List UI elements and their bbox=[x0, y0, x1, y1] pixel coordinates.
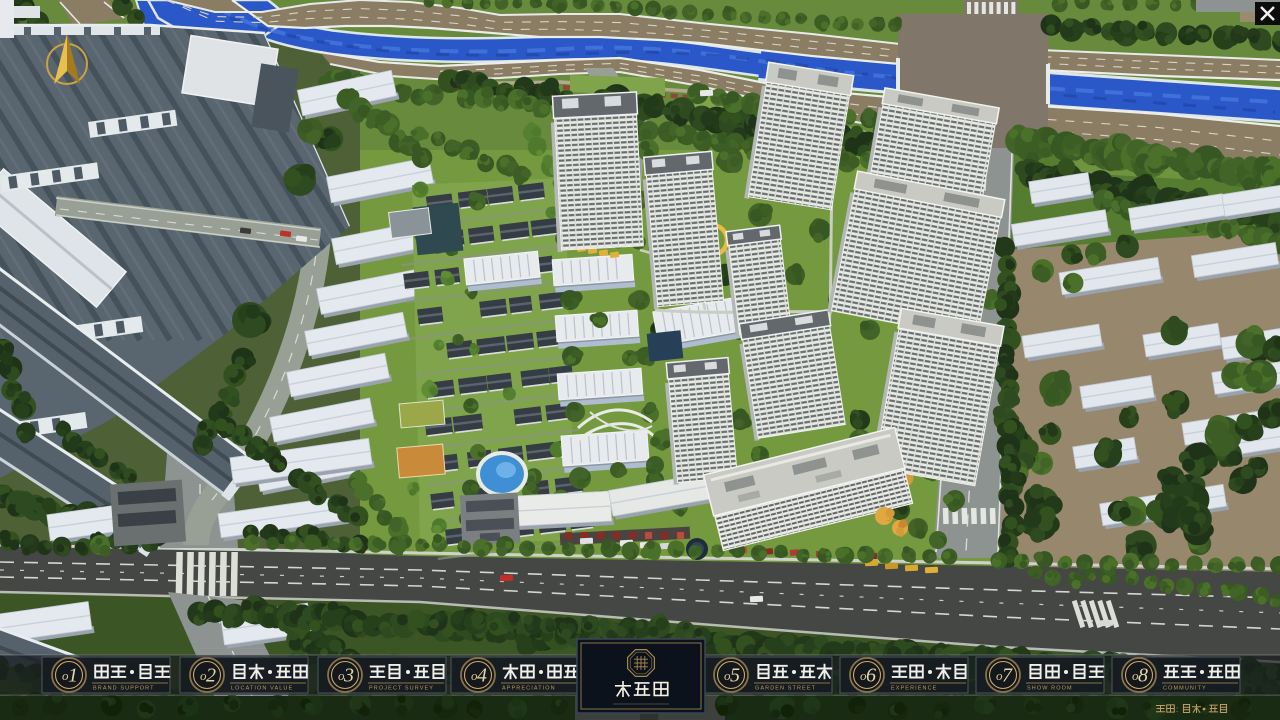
svg-text:7: 7 bbox=[1002, 665, 1013, 687]
svg-text:PROJECT SURVEY: PROJECT SURVEY bbox=[369, 686, 434, 692]
svg-text:4: 4 bbox=[477, 665, 487, 687]
svg-text:3: 3 bbox=[343, 665, 354, 687]
svg-text:APPRECIATION: APPRECIATION bbox=[502, 686, 556, 692]
svg-text::: : bbox=[1176, 705, 1178, 714]
svg-text:EXPERIENCE: EXPERIENCE bbox=[891, 686, 937, 692]
svg-text:8: 8 bbox=[1138, 665, 1148, 687]
svg-text:COMMUNITY: COMMUNITY bbox=[1163, 686, 1207, 692]
svg-text:GARDEN STREET: GARDEN STREET bbox=[755, 686, 816, 692]
svg-text:6: 6 bbox=[866, 665, 876, 687]
svg-text:SHOW ROOM: SHOW ROOM bbox=[1027, 686, 1073, 692]
svg-text:5: 5 bbox=[730, 665, 740, 687]
svg-text:BRAND SUPPORT: BRAND SUPPORT bbox=[93, 686, 155, 692]
svg-text:2: 2 bbox=[206, 665, 216, 687]
svg-text:LOCATION VALUE: LOCATION VALUE bbox=[231, 686, 293, 692]
svg-text:1: 1 bbox=[68, 665, 78, 687]
